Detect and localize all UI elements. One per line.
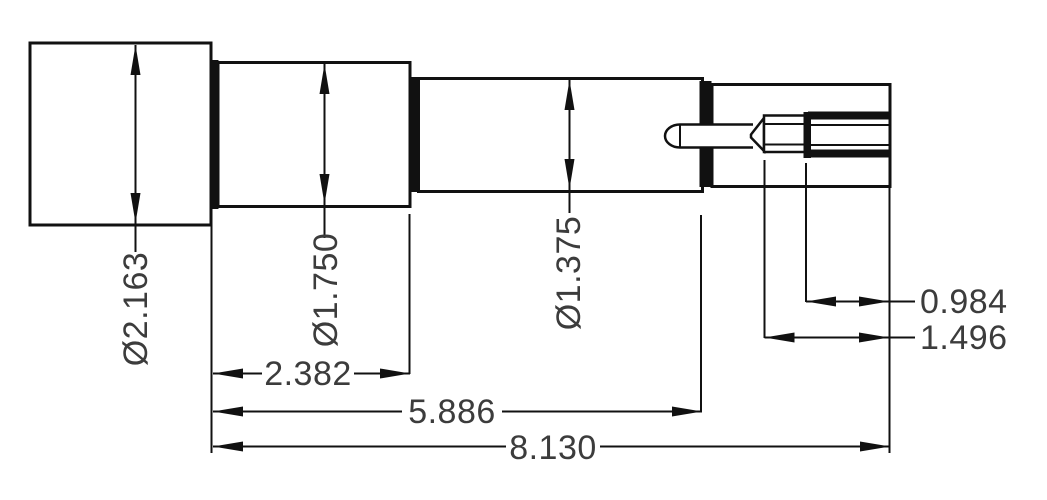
arrow-down-diameter-1375 [565,159,575,189]
arrow-down-diameter-2163 [131,193,141,223]
arrow-right-2382 [380,369,410,379]
dim-label-1496: 1.496 [920,321,1008,355]
dim-label-diameter-1375: Ø1.375 [552,216,586,331]
dim-label-2382: 2.382 [264,357,352,391]
arrow-right-0984 [859,297,889,307]
shaft-section-1-outline [30,43,211,225]
chamfer-segment-outline [764,116,808,153]
dim-label-5886: 5.886 [408,395,496,429]
arrow-left-1496 [765,333,795,343]
dim-label-0984: 0.984 [920,285,1008,319]
arrow-left-8130 [213,442,243,452]
dim-label-diameter-2163: Ø2.163 [119,252,153,367]
shoulder-band-2 [409,77,418,192]
shoulder-band-1 [210,60,219,209]
technical-drawing-canvas: Ø2.163 Ø1.750 Ø1.375 2.382 5.886 8.130 0… [0,0,1047,500]
arrow-left-2382 [213,369,243,379]
pin-body-with-round-cap [665,125,753,148]
arrow-right-1496 [859,333,889,343]
arrow-up-diameter-1375 [565,80,575,110]
arrow-up-diameter-1750 [320,64,330,94]
drawing-linework [0,0,1047,500]
arrow-up-diameter-2163 [131,45,141,75]
shaft-section-2-outline [218,63,410,207]
dim-label-8130: 8.130 [509,431,597,465]
thread-bottom-bar [808,150,890,158]
arrow-left-5886 [213,407,243,417]
arrow-right-5886 [672,407,702,417]
dim-label-diameter-1750: Ø1.750 [309,233,343,348]
arrow-right-8130 [860,442,890,452]
thread-root-lines [811,125,889,145]
thread-top-bar [808,112,890,120]
arrow-left-0984 [806,297,836,307]
pin-and-thread-assembly [665,112,890,159]
arrow-down-diameter-1750 [320,174,330,204]
shaft-section-3-outline [419,79,703,192]
